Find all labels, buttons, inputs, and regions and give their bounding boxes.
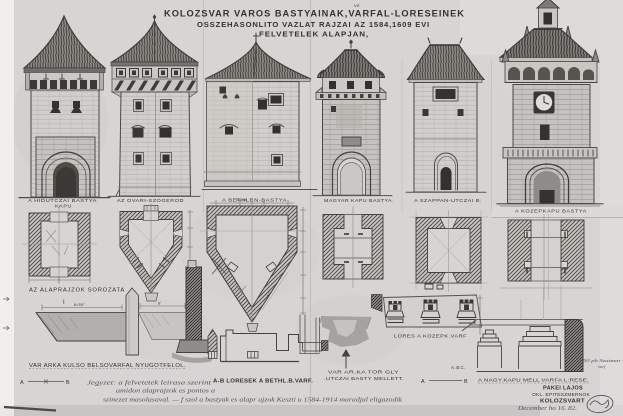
svg-text:A: A: [20, 380, 24, 386]
svg-text:December ho 16. 82.: December ho 16. 82.: [517, 406, 577, 412]
svg-text:A: A: [421, 379, 425, 385]
svg-text:LORES A KOZEPK.VARF: LORES A KOZEPK.VARF: [394, 334, 467, 339]
svg-text:B: B: [464, 379, 468, 385]
svg-text:A KOZEPKAPU BASTYA: A KOZEPKAPU BASTYA: [515, 209, 587, 215]
svg-text:A SZAPPAN-UTCZAI B.: A SZAPPAN-UTCZAI B.: [414, 198, 482, 203]
svg-text:6=3′0″: 6=3′0″: [74, 303, 85, 307]
svg-text:KAPU: KAPU: [55, 204, 72, 209]
svg-text:A HIDUTCZAI BASTYA: A HIDUTCZAI BASTYA: [28, 198, 98, 203]
svg-text:AZ OVARI-SZOGEROD: AZ OVARI-SZOGEROD: [117, 198, 184, 203]
svg-text:KOLOZSVAR VAROS BASTYAINAK,VAR: KOLOZSVAR VAROS BASTYAINAK,VARFAL-LORESE…: [164, 9, 465, 19]
svg-text:szinezet masolasaval. — f szol: szinezet masolasaval. — f szol a bastyak…: [103, 397, 402, 404]
svg-text:5.4 4.6: 5.4 4.6: [236, 198, 247, 202]
svg-text:VE: VE: [354, 3, 360, 8]
svg-text:VAR AR.KA TOR GLY: VAR AR.KA TOR GLY: [328, 370, 399, 375]
svg-text:OKL. EPITESZMERNOK: OKL. EPITESZMERNOK: [532, 392, 591, 397]
svg-text:A. B.C.: A. B.C.: [451, 365, 465, 370]
svg-text:B: B: [66, 380, 70, 386]
svg-text:MAGYAR KAPU BASTYA.: MAGYAR KAPU BASTYA.: [324, 198, 394, 203]
svg-text:PAKEI LAJOS: PAKEI LAJOS: [543, 386, 583, 392]
svg-text:50 pb Szatmar: 50 pb Szatmar: [583, 358, 621, 363]
svg-text:A BETHLEN-BASTYA: A BETHLEN-BASTYA: [222, 197, 288, 202]
svg-text:VAR ARKA KULSO BELSOVARFAL NYU: VAR ARKA KULSO BELSOVARFAL NYUGOTFELOL.: [29, 363, 186, 369]
svg-text:FELVETELEK ALAPJAN,: FELVETELEK ALAPJAN,: [259, 30, 369, 39]
svg-text:KOLOZSVART: KOLOZSVART: [540, 399, 585, 405]
svg-text:A NAGY.KAPU MELL VARFA L:RESE.: A NAGY.KAPU MELL VARFA L:RESE.: [478, 378, 589, 384]
svg-text:OSSZEHASONLITO VAZLAT RAJZAI A: OSSZEHASONLITO VAZLAT RAJZAI AZ 1584,160…: [197, 20, 430, 29]
svg-text:amidon alaprajzok es pontos a: amidon alaprajzok es pontos a: [116, 389, 215, 395]
svg-text:.UTCZAI BASTY MELLETT.: .UTCZAI BASTY MELLETT.: [324, 376, 404, 381]
svg-text:Jegyzet: a felvetetek leirasa: Jegyzet: a felvetetek leirasa szerint: [87, 380, 211, 387]
svg-text:AZ ALAPRAJZOK SOROZATA: AZ ALAPRAJZOK SOROZATA: [29, 288, 125, 294]
svg-text:A-B LORESEK A BETHL.B.VARF.: A-B LORESEK A BETHL.B.VARF.: [213, 379, 313, 385]
svg-text:varf: varf: [598, 364, 606, 369]
svg-text:6′: 6′: [158, 302, 161, 306]
